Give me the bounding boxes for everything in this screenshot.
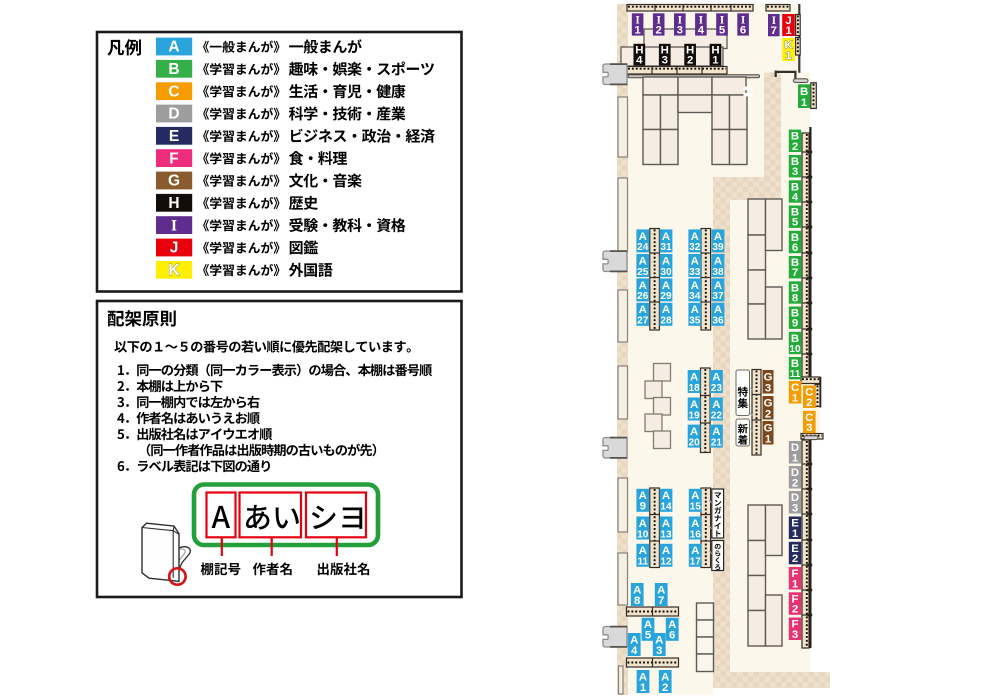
svg-text:3: 3: [806, 422, 812, 434]
svg-text:2: 2: [662, 682, 668, 694]
svg-text:A: A: [691, 304, 699, 316]
svg-text:18: 18: [688, 383, 700, 394]
svg-text:7: 7: [771, 25, 777, 37]
svg-text:A: A: [714, 255, 722, 267]
svg-text:A: A: [639, 545, 647, 557]
svg-text:4: 4: [698, 24, 705, 36]
svg-text:10: 10: [789, 344, 801, 355]
svg-text:3: 3: [656, 645, 662, 657]
svg-text:6: 6: [740, 24, 746, 36]
svg-text:11: 11: [790, 369, 801, 380]
svg-text:1: 1: [792, 392, 799, 404]
svg-text:1: 1: [640, 682, 647, 694]
svg-text:A: A: [714, 231, 722, 243]
svg-text:1: 1: [801, 97, 808, 109]
svg-text:21: 21: [711, 437, 723, 448]
svg-text:37: 37: [712, 291, 724, 302]
svg-text:4: 4: [636, 54, 643, 66]
svg-text:K: K: [168, 262, 180, 279]
svg-text:34: 34: [689, 291, 701, 302]
svg-text:3: 3: [677, 24, 683, 36]
svg-text:2: 2: [792, 604, 798, 616]
svg-text:30: 30: [660, 267, 672, 278]
svg-text:32: 32: [689, 242, 701, 253]
svg-text:1: 1: [712, 54, 719, 66]
svg-text:I: I: [171, 217, 177, 234]
svg-text:9: 9: [640, 501, 646, 513]
svg-text:2: 2: [792, 553, 798, 565]
svg-text:23: 23: [711, 383, 723, 394]
svg-text:A: A: [690, 399, 698, 411]
svg-text:11: 11: [637, 557, 648, 568]
svg-text:4: 4: [792, 192, 799, 204]
svg-text:1: 1: [792, 528, 799, 540]
svg-text:A: A: [639, 280, 647, 292]
svg-text:A: A: [712, 426, 720, 438]
svg-text:2: 2: [687, 54, 693, 66]
svg-text:3: 3: [792, 166, 798, 178]
svg-text:35: 35: [689, 316, 701, 327]
svg-text:A: A: [662, 490, 670, 502]
svg-text:A: A: [662, 304, 670, 316]
svg-text:3: 3: [662, 54, 668, 66]
svg-text:A: A: [662, 231, 670, 243]
svg-text:7: 7: [658, 595, 664, 607]
svg-text:A: A: [639, 304, 647, 316]
svg-text:A: A: [639, 231, 647, 243]
svg-text:J: J: [170, 240, 179, 257]
svg-text:2: 2: [806, 397, 812, 409]
svg-text:24: 24: [637, 242, 649, 253]
svg-text:A: A: [712, 371, 720, 383]
svg-text:9: 9: [792, 318, 798, 330]
svg-text:4: 4: [631, 645, 638, 657]
svg-text:3: 3: [765, 382, 771, 394]
svg-text:A: A: [662, 255, 670, 267]
svg-text:5: 5: [792, 217, 799, 229]
svg-text:A: A: [691, 280, 699, 292]
svg-text:A: A: [662, 545, 670, 557]
svg-text:1: 1: [634, 24, 641, 36]
svg-text:A: A: [639, 518, 647, 530]
svg-text:A: A: [691, 518, 699, 530]
svg-text:36: 36: [712, 316, 724, 327]
svg-text:10: 10: [637, 529, 649, 540]
svg-text:A: A: [690, 426, 698, 438]
svg-text:5: 5: [645, 630, 652, 642]
svg-text:E: E: [169, 128, 179, 145]
svg-text:1: 1: [792, 452, 799, 464]
svg-text:1: 1: [785, 50, 792, 62]
svg-text:A: A: [690, 371, 698, 383]
svg-text:D: D: [168, 106, 179, 123]
svg-text:A: A: [168, 39, 179, 56]
svg-text:20: 20: [688, 437, 700, 448]
svg-text:A: A: [691, 231, 699, 243]
svg-text:2: 2: [792, 141, 798, 153]
svg-text:8: 8: [634, 595, 640, 607]
svg-text:6: 6: [669, 630, 675, 642]
svg-text:H: H: [168, 195, 179, 212]
svg-text:15: 15: [690, 502, 702, 513]
svg-text:2: 2: [656, 24, 662, 36]
svg-text:38: 38: [712, 267, 724, 278]
svg-text:C: C: [168, 83, 179, 100]
svg-text:17: 17: [690, 557, 702, 568]
svg-text:7: 7: [792, 267, 798, 279]
svg-text:A: A: [691, 490, 699, 502]
svg-text:3: 3: [792, 502, 798, 514]
svg-text:26: 26: [637, 291, 649, 302]
svg-text:27: 27: [637, 316, 649, 327]
svg-text:8: 8: [792, 293, 798, 305]
svg-text:19: 19: [688, 410, 700, 421]
svg-text:12: 12: [660, 557, 672, 568]
svg-text:1: 1: [792, 578, 799, 590]
svg-text:A: A: [691, 255, 699, 267]
svg-text:A: A: [714, 280, 722, 292]
svg-text:3: 3: [792, 629, 798, 641]
svg-text:22: 22: [711, 410, 723, 421]
svg-text:A: A: [639, 255, 647, 267]
svg-text:25: 25: [637, 267, 649, 278]
svg-text:29: 29: [660, 291, 672, 302]
svg-text:2: 2: [792, 477, 798, 489]
svg-text:13: 13: [660, 529, 672, 540]
svg-text:G: G: [168, 173, 180, 190]
svg-text:1: 1: [765, 433, 772, 445]
svg-text:16: 16: [690, 529, 702, 540]
svg-text:B: B: [168, 61, 179, 78]
svg-text:2: 2: [765, 408, 771, 420]
svg-text:A: A: [691, 545, 699, 557]
svg-text:14: 14: [660, 502, 672, 513]
svg-text:A: A: [662, 518, 670, 530]
svg-text:1: 1: [785, 25, 792, 37]
svg-text:5: 5: [719, 24, 726, 36]
svg-text:31: 31: [660, 242, 672, 253]
svg-text:28: 28: [660, 316, 672, 327]
svg-text:F: F: [169, 150, 178, 167]
svg-text:A: A: [714, 304, 722, 316]
svg-text:A: A: [712, 399, 720, 411]
svg-text:39: 39: [712, 242, 724, 253]
svg-text:33: 33: [689, 267, 701, 278]
svg-text:6: 6: [792, 242, 798, 254]
svg-text:A: A: [662, 280, 670, 292]
